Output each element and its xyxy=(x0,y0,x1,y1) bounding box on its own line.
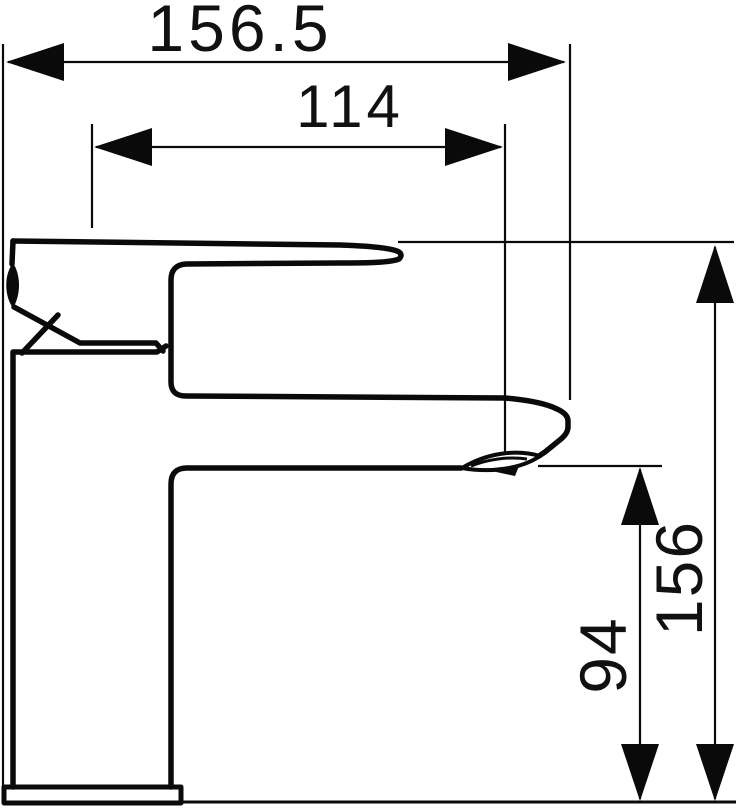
dim-label-outlet-height: 94 xyxy=(566,616,640,693)
aerator-detail xyxy=(462,453,540,476)
body-top-and-left xyxy=(13,346,166,787)
dim-label-spout-reach: 114 xyxy=(296,73,404,140)
base-plate xyxy=(4,787,181,803)
arrow-left-icon xyxy=(6,43,64,81)
arrow-left-icon xyxy=(94,128,152,166)
arrow-up-icon xyxy=(621,467,659,525)
spout-underside-and-body-right xyxy=(171,468,461,787)
handle-underside xyxy=(14,307,163,351)
arrow-down-icon xyxy=(621,744,659,801)
aerator-leaf-outline xyxy=(462,453,540,470)
arrow-up-icon xyxy=(696,245,734,303)
faucet-outline xyxy=(4,241,568,803)
dim-label-overall-height: 156 xyxy=(642,520,716,636)
technical-drawing-canvas: 156.5 114 156 94 xyxy=(0,0,738,810)
arrow-right-icon xyxy=(508,43,566,81)
dim-label-overall-length: 156.5 xyxy=(147,0,332,65)
handle-front-lens xyxy=(6,263,19,308)
arrow-down-icon xyxy=(696,744,734,801)
arrow-right-icon xyxy=(445,128,503,166)
handle-front-edge xyxy=(12,241,13,264)
faucet-dimension-diagram: 156.5 114 156 94 xyxy=(0,0,738,810)
handle-lever-and-spout-outline xyxy=(13,241,568,456)
